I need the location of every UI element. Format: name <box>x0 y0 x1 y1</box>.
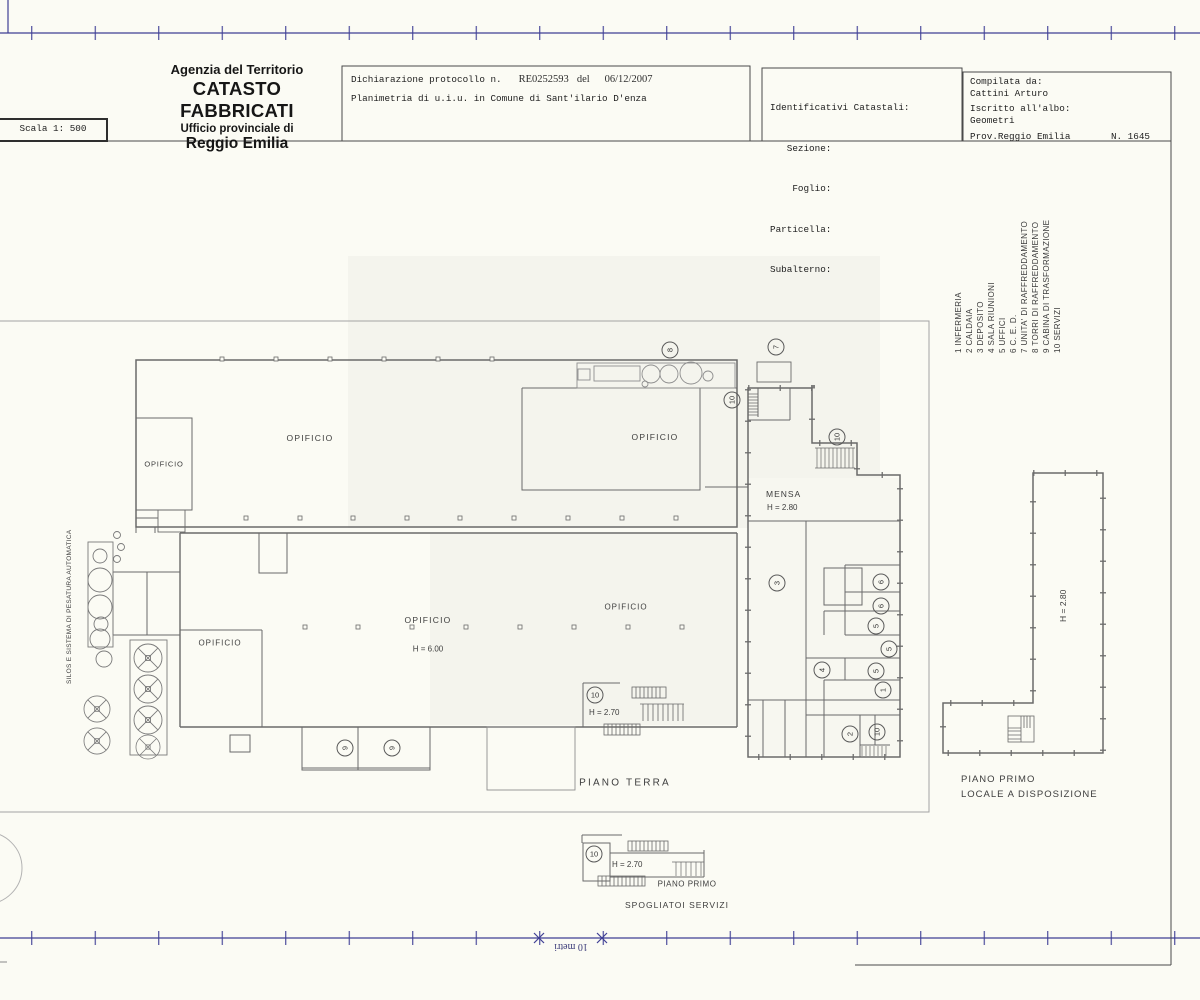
room-label-mensa: MENSA <box>766 489 801 499</box>
silos-label-vertical: SILOS E SISTEMA DI PESATURA AUTOMATICA <box>66 530 73 684</box>
room-number: 6 <box>873 598 890 615</box>
legend-item: 8 TORRI DI RAFFREDDAMENTO <box>1031 222 1040 353</box>
register-number: N. 1645 <box>1111 131 1150 143</box>
room-label-opificio: OPIFICIO <box>144 460 183 469</box>
room-number: 7 <box>768 339 785 356</box>
register-province: Prov.Reggio Emilia <box>970 131 1070 143</box>
legend-item: 3 DEPOSITO <box>976 301 985 353</box>
office-label: Ufficio provinciale di <box>138 123 336 135</box>
scale-bar-label: 10 metri <box>543 941 599 952</box>
room-number: 10 <box>829 429 846 446</box>
floor-use-label: LOCALE A DISPOSIZIONE <box>961 789 1098 800</box>
room-number: 4 <box>814 662 831 679</box>
room-label-opificio: OPIFICIO <box>604 603 647 612</box>
legend-item: 2 CALDAIA <box>965 308 974 353</box>
legend-item: 10 SERVIZI <box>1053 307 1062 353</box>
room-number: 3 <box>769 575 786 592</box>
room-label-opificio: OPIFICIO <box>405 615 452 625</box>
room-number: 8 <box>662 342 679 359</box>
room-height-label: H = 2.70 <box>612 860 642 869</box>
cadastral-ids-box: Identificativi Catastali: Sezione: Fogli… <box>770 74 909 304</box>
room-height-label-vertical: H = 2.80 <box>1058 590 1068 622</box>
declaration-protocol: RE0252593 <box>519 74 569 85</box>
declaration-label: Dichiarazione protocollo n. <box>351 74 502 85</box>
room-label-opificio: OPIFICIO <box>287 433 334 443</box>
declaration-box-content: Dichiarazione protocollo n. RE0252593 de… <box>351 74 743 104</box>
cadastral-field-particella: Particella: <box>770 223 909 237</box>
silos-and-fans <box>84 532 167 760</box>
room-number: 5 <box>868 618 885 635</box>
spogliatoi-label: SPOGLIATOI SERVIZI <box>625 900 729 910</box>
compiler-box: Compilata da: Cattini Arturo Iscritto al… <box>970 76 1164 143</box>
declaration-date: 06/12/2007 <box>605 74 653 85</box>
legend-item: 7 UNITA' DI RAFFREDDAMENTO <box>1020 221 1029 353</box>
room-number: 10 <box>587 687 604 704</box>
legend-item: 5 UFFICI <box>998 317 1007 353</box>
planimetria-line: Planimetria di u.i.u. in Comune di Sant'… <box>351 93 743 104</box>
legend-item: 9 CABINA DI TRASFORMAZIONE <box>1042 220 1051 353</box>
room-height-label: H = 2.70 <box>589 708 619 717</box>
agency-header: Agenzia del Territorio CATASTO FABBRICAT… <box>138 62 336 153</box>
room-number: 9 <box>384 740 401 757</box>
piano-primo-walls <box>943 473 1103 753</box>
compiled-by-label: Compilata da: <box>970 76 1164 88</box>
room-number: 6 <box>873 574 890 591</box>
scale-label: Scala 1: 500 <box>0 123 106 134</box>
room-number: 1 <box>875 682 892 699</box>
compiler-name: Cattini Arturo <box>970 88 1164 100</box>
cadastral-field-sezione: Sezione: <box>770 142 909 156</box>
floor-label-piano-terra: PIANO TERRA <box>579 778 671 789</box>
room-number: 10 <box>869 724 886 741</box>
declaration-del: del <box>577 74 590 85</box>
register-value: Geometri <box>970 115 1164 127</box>
legend-item: 4 SALA RIUNIONI <box>987 282 996 353</box>
room-height-label: H = 2.80 <box>767 503 797 512</box>
legend-item: 1 INFERMERIA <box>954 292 963 353</box>
room-number: 10 <box>724 392 741 409</box>
room-number: 9 <box>337 740 354 757</box>
room-number: 2 <box>842 726 859 743</box>
scan-shading <box>348 256 900 755</box>
office-city: Reggio Emilia <box>138 135 336 153</box>
cadastral-field-subalterno: Subalterno: <box>770 263 909 277</box>
room-label-opificio: OPIFICIO <box>632 432 679 442</box>
edge-arc <box>0 832 22 904</box>
cadastral-title: Identificativi Catastali: <box>770 101 909 115</box>
floor-label-piano-primo: PIANO PRIMO <box>961 774 1035 785</box>
spogliatoi-plan-walls <box>582 835 704 886</box>
room-label-opificio: OPIFICIO <box>198 639 241 648</box>
agency-name: Agenzia del Territorio <box>138 62 336 77</box>
floor-label-piano-primo-small: PIANO PRIMO <box>658 880 717 889</box>
room-number: 5 <box>881 641 898 658</box>
legend-item: 6 C. E. D. <box>1009 314 1018 353</box>
register-label: Iscritto all'albo: <box>970 103 1164 115</box>
cadastral-field-foglio: Foglio: <box>770 182 909 196</box>
registry-title: CATASTO FABBRICATI <box>138 78 336 122</box>
room-number: 10 <box>586 846 603 863</box>
cadastral-plan-sheet: Agenzia del Territorio CATASTO FABBRICAT… <box>0 0 1200 1000</box>
room-height-label: H = 6.00 <box>413 645 443 654</box>
room-number: 5 <box>868 663 885 680</box>
